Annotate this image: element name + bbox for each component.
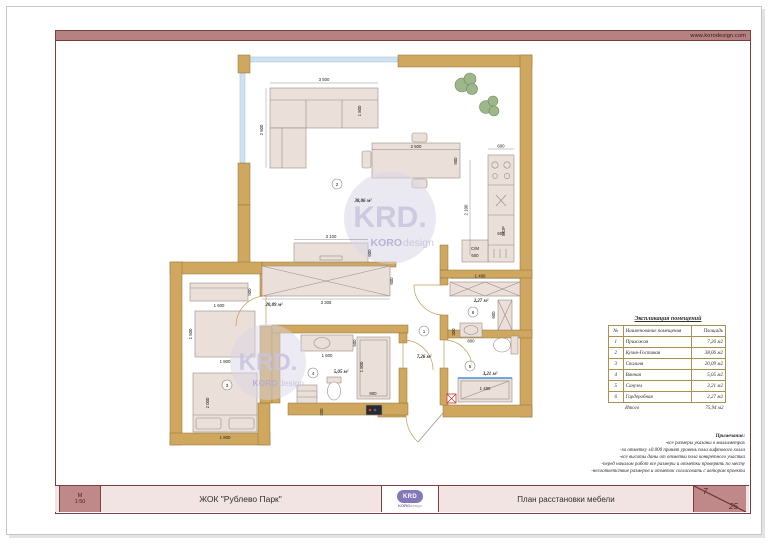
cell-name: Ванная [623,370,691,381]
scale-value: 1:50 [75,499,86,506]
room-area-label: 38,06 м² [353,198,372,204]
dim-label: 2 600 [259,124,264,135]
toilet-bath4 [327,377,341,400]
door-arc-wardrobe [414,285,444,315]
dim-label: 900 [453,157,458,165]
cell-num: 6 [609,392,624,403]
scale-cell: М 1:50 [59,486,101,512]
dresser [190,283,248,301]
electric-box [447,394,456,403]
note-line: -за отметку ±0.000 принят уровень пола л… [560,447,745,454]
room-number: 3 [226,383,229,388]
sheet-total: 25 [729,502,738,511]
total-label: Итого [623,403,691,414]
cell-name: Спальня [623,359,691,370]
dim-label: 3 500 [319,77,330,82]
dim-label: 600 [389,277,394,285]
appliance-label: МОР [501,226,506,236]
cell-area: 20,09 м2 [691,359,725,370]
dim-label: 1 600 [322,353,333,358]
website-url: www.korodesign.com [690,33,750,39]
dim-label: 1 800 [359,361,364,372]
room-number: 4 [312,371,315,376]
cell-name: Гардеробная [623,392,691,403]
note-line: -перед началом работ все размеры и отмет… [560,461,745,468]
cell-name: Санузел [623,381,691,392]
room-number: 5 [469,364,472,369]
cell-name: Прихожая [623,337,691,348]
title-block: М 1:50 ЖОК "Рублево Парк" KRD KOROdesign… [55,485,749,512]
watermark-krd: KRD. [353,201,426,234]
dim-label: 500 [352,339,357,347]
dim-label: 500 [247,288,252,296]
sheet-counter: 7 25 [694,486,746,512]
dim-label: 300 [451,328,456,336]
header-bar: www.korodesign.com [56,31,750,41]
logo-koro: KORO [398,503,410,508]
dim-label: 2 000 [205,397,210,408]
room-area-label: 3,21 м² [482,371,498,377]
room-number: 6 [472,310,475,315]
dim-label: 3 100 [326,234,337,239]
dim-label: 3 305 [321,300,332,305]
cell-num: 1 [609,337,624,348]
dim-label: 1 800 [220,359,231,364]
col-area: Площадь [691,326,725,337]
dim-label: 2 100 [464,204,469,215]
room-schedule-title: Экспликация помещений [608,316,728,322]
logo-cell: KRD KOROdesign [382,486,439,512]
sheet-number: 7 [703,487,707,496]
dim-label: 900 [369,391,377,396]
notes-title: Примечание: [560,433,745,440]
watermark-design: design [279,378,304,388]
col-name: Наименование помещения [623,326,691,337]
window-left [240,73,245,163]
table-header-row: № Наименование помещения Площадь [609,326,726,337]
plant-icon [455,73,499,116]
room-area-label: 5,05 м² [334,369,349,375]
watermark-koro: KORO [253,378,279,388]
dim-label: 600 [471,253,479,258]
washing-machine [462,240,488,262]
room-number: 1 [423,329,426,334]
note-line: -все размеры указаны в миллиметрах [560,440,745,447]
dim-label: 600 [491,311,496,319]
vanity [301,335,353,351]
logo-caption: KOROdesign [398,503,422,508]
room-number: 2 [336,182,339,187]
room-area-label: 2,27 м² [473,298,489,304]
cell-area: 3,21 м2 [691,381,725,392]
washing-machine-label: С/М [471,246,479,251]
cell-area: 7,26 м2 [691,337,725,348]
cell-num: 3 [609,359,624,370]
sheet: www.korodesign.com [0,0,770,545]
dim-label: 600 [367,249,372,257]
entrance-door [406,413,443,442]
note-line: -несоответствие размеров и отметок согла… [560,468,745,475]
cell-num [609,403,624,414]
drawing-title: План расстановки мебели [439,486,694,512]
watermark-design: design [403,237,434,249]
cell-area: 38,06 м2 [691,348,725,359]
dim-label: 1 800 [220,435,231,440]
project-name: ЖОК "Рублево Парк" [100,486,382,512]
dim-label: 1 800 [357,105,362,116]
table-row: 3 Спальня 20,09 м2 [609,359,726,370]
dim-label: 800 [467,339,475,344]
room-schedule-table: № Наименование помещения Площадь 1 Прихо… [608,325,726,413]
room-schedule: Экспликация помещений № Наименование пом… [608,316,728,413]
hallway-wardrobe [262,266,390,296]
dim-label: 600 [497,144,505,149]
total-value: 75,94 м2 [691,403,725,414]
dim-label: 1 480 [475,274,486,279]
table-row: 5 Санузел 3,21 м2 [609,381,726,392]
note-line: -все высоты даны от отметки пола конкрет… [560,454,745,461]
dim-label: 2 500 [411,144,422,149]
cell-num: 4 [609,370,624,381]
room-area-label: 20,09 м² [264,302,283,308]
cell-area: 5,05 м2 [691,370,725,381]
manifold [366,405,382,415]
wc-sink [460,323,482,337]
cell-num: 2 [609,348,624,359]
krd-logo-icon: KRD [397,490,423,503]
table-row: 6 Гардеробная 2,27 м2 [609,392,726,403]
notes-block: Примечание: -все размеры указаны в милли… [560,433,745,475]
table-row: 1 Прихожая 7,26 м2 [609,337,726,348]
floor-plan: KRD. KORO design KRD. KORO design 3 500 … [150,45,550,455]
logo-design: design [410,503,422,508]
table-row: 4 Ванная 5,05 м2 [609,370,726,381]
toilet-wc [494,336,519,354]
dim-label: 1 500 [188,328,193,339]
room-area-label: 7,26 м² [417,354,432,360]
table-total-row: Итого 75,94 м2 [609,403,726,414]
col-number: № [609,326,624,337]
watermark-koro: KORO [371,237,403,249]
dim-label: 200 [319,408,324,416]
table-row: 2 Кухня-Гостиная 38,06 м2 [609,348,726,359]
dim-label: 1 600 [214,303,225,308]
window-top [246,57,398,62]
watermark-krd: KRD. [239,349,298,376]
dim-label: 1 480 [480,386,491,391]
cell-name: Кухня-Гостиная [623,348,691,359]
cell-num: 5 [609,381,624,392]
cell-area: 2,27 м2 [691,392,725,403]
kitchen-units [488,155,514,262]
